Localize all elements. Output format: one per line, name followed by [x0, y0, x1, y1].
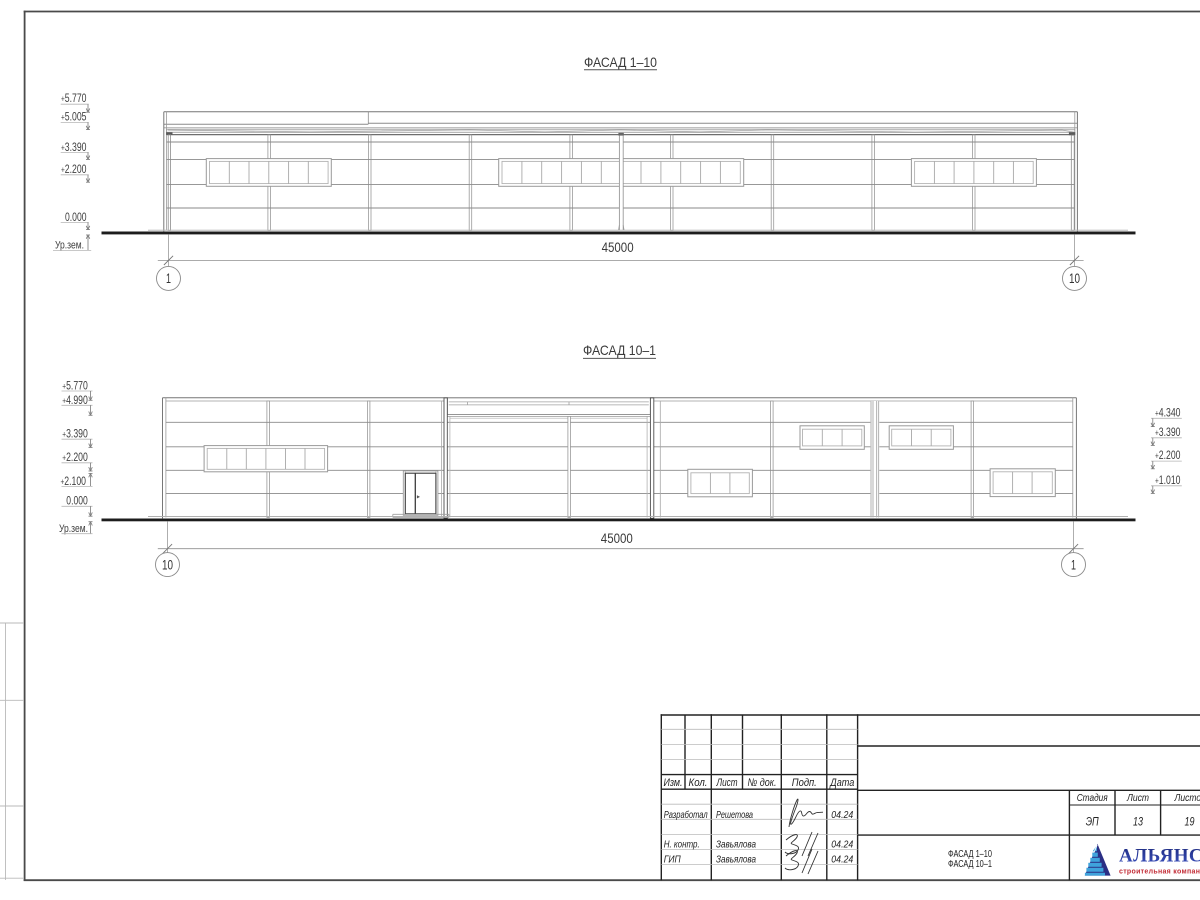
svg-text:04.24: 04.24 — [831, 854, 853, 866]
svg-text:1: 1 — [166, 271, 171, 286]
svg-text:1: 1 — [1071, 557, 1076, 572]
svg-text:ФАСАД 1–10: ФАСАД 1–10 — [584, 54, 657, 70]
svg-text:45000: 45000 — [602, 240, 634, 255]
svg-text:+3.390: +3.390 — [61, 140, 87, 154]
svg-text:Дата: Дата — [829, 777, 855, 789]
svg-text:Завьялова: Завьялова — [716, 854, 756, 866]
svg-text:ГИП: ГИП — [664, 854, 681, 866]
svg-text:Лист: Лист — [1126, 792, 1149, 804]
svg-text:Разработал: Разработал — [664, 809, 708, 821]
svg-text:Подп.: Подп. — [792, 777, 817, 789]
svg-text:Н. контр.: Н. контр. — [664, 839, 700, 851]
svg-text:АЛЬЯНС: АЛЬЯНС — [1119, 846, 1200, 867]
svg-text:+2.200: +2.200 — [62, 450, 88, 464]
svg-text:Ур.зем.: Ур.зем. — [59, 523, 88, 535]
svg-text:+4.990: +4.990 — [62, 393, 88, 407]
svg-text:+2.200: +2.200 — [1155, 448, 1181, 462]
svg-text:Лист: Лист — [716, 777, 738, 789]
svg-text:ФАСАД 10–1: ФАСАД 10–1 — [583, 342, 656, 358]
svg-text:Ур.зем.: Ур.зем. — [55, 240, 84, 252]
svg-text:строительная компания: строительная компания — [1119, 869, 1200, 876]
svg-text:04.24: 04.24 — [831, 839, 853, 851]
svg-text:10: 10 — [1069, 271, 1080, 286]
svg-text:+4.340: +4.340 — [1155, 405, 1181, 419]
svg-text:ЭП: ЭП — [1086, 816, 1100, 828]
svg-text:Изм.: Изм. — [664, 777, 683, 789]
svg-text:Кол.: Кол. — [689, 777, 708, 789]
svg-text:+2.200: +2.200 — [61, 162, 87, 176]
svg-text:Завьялова: Завьялова — [716, 839, 756, 851]
svg-text:0.000: 0.000 — [66, 494, 88, 508]
svg-text:13: 13 — [1133, 816, 1143, 828]
svg-text:+5.005: +5.005 — [61, 110, 87, 124]
svg-text:Решетова: Решетова — [716, 809, 753, 821]
svg-text:+3.390: +3.390 — [1155, 425, 1181, 439]
svg-text:19: 19 — [1185, 816, 1195, 828]
svg-text:+1.010: +1.010 — [1155, 473, 1181, 487]
svg-text:04.24: 04.24 — [831, 809, 853, 821]
svg-text:ФАСАД 10–1: ФАСАД 10–1 — [948, 859, 992, 870]
svg-text:+2.100: +2.100 — [61, 474, 87, 488]
svg-text:+3.390: +3.390 — [62, 427, 88, 441]
svg-text:0.000: 0.000 — [65, 210, 87, 224]
svg-text:Листов: Листов — [1174, 792, 1200, 804]
svg-text:+5.770: +5.770 — [62, 378, 88, 392]
svg-text:45000: 45000 — [601, 531, 633, 546]
svg-text:10: 10 — [162, 557, 173, 572]
svg-text:+5.770: +5.770 — [61, 91, 87, 105]
svg-text:Стадия: Стадия — [1077, 792, 1108, 804]
svg-text:№ док.: № док. — [748, 777, 777, 789]
